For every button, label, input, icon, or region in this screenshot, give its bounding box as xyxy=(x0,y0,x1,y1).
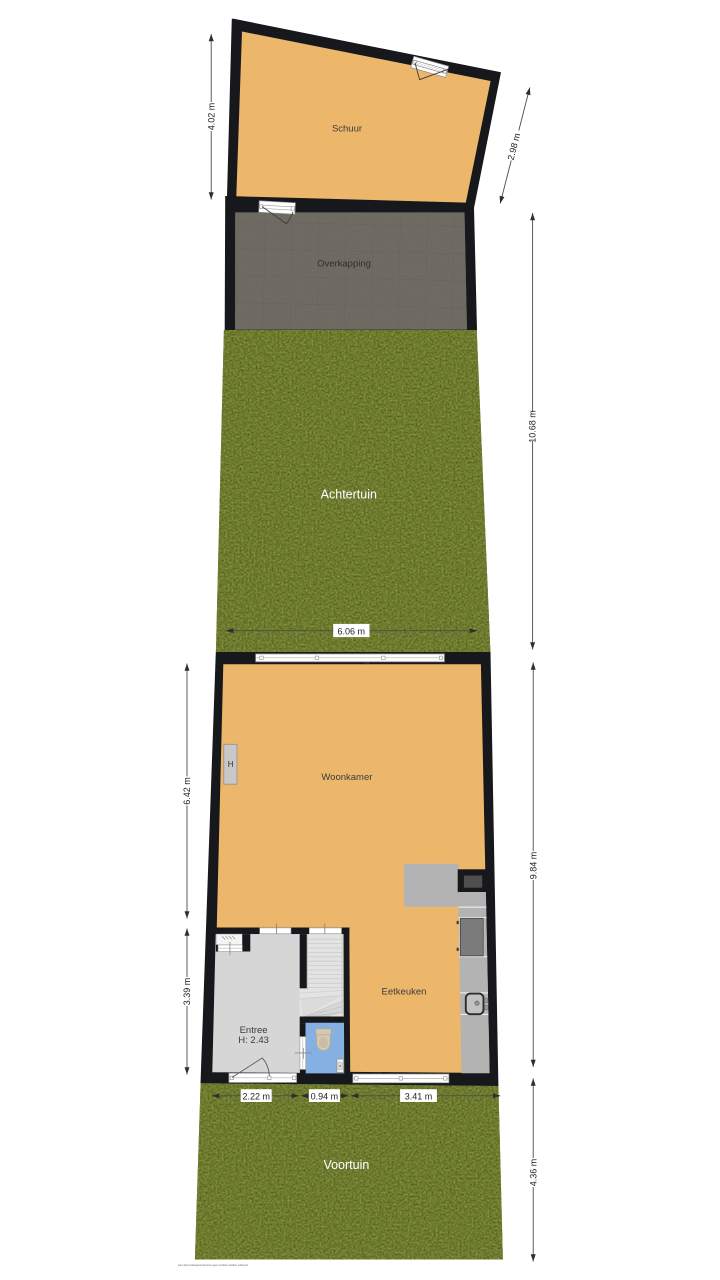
svg-text:3.39 m: 3.39 m xyxy=(182,978,192,1006)
svg-text:Achtertuin: Achtertuin xyxy=(321,488,377,502)
svg-text:4.02 m: 4.02 m xyxy=(206,103,216,131)
svg-text:2.22 m: 2.22 m xyxy=(242,1092,270,1102)
svg-text:9.84 m: 9.84 m xyxy=(528,852,538,880)
svg-text:363: 363 xyxy=(365,662,370,666)
svg-text:6.42 m: 6.42 m xyxy=(182,777,192,805)
svg-text:10.68 m: 10.68 m xyxy=(528,410,538,443)
svg-text:H: 2.43: H: 2.43 xyxy=(238,1035,269,1046)
svg-text:4.36 m: 4.36 m xyxy=(528,1159,538,1187)
svg-text:Eetkeuken: Eetkeuken xyxy=(382,986,427,997)
svg-text:Overkapping: Overkapping xyxy=(317,258,371,269)
svg-text:0.94 m: 0.94 m xyxy=(311,1092,339,1102)
svg-text:2.98 m: 2.98 m xyxy=(506,132,522,161)
svg-text:Woonkamer: Woonkamer xyxy=(321,772,372,783)
svg-text:6.06 m: 6.06 m xyxy=(338,627,366,637)
svg-text:H: H xyxy=(228,760,234,769)
svg-text:Voortuin: Voortuin xyxy=(323,1158,369,1172)
svg-text:3.41 m: 3.41 m xyxy=(405,1092,433,1102)
svg-text:Aan deze plattegrond kunnen ge: Aan deze plattegrond kunnen geen rechten… xyxy=(178,1263,249,1267)
svg-text:Schuur: Schuur xyxy=(332,124,362,135)
